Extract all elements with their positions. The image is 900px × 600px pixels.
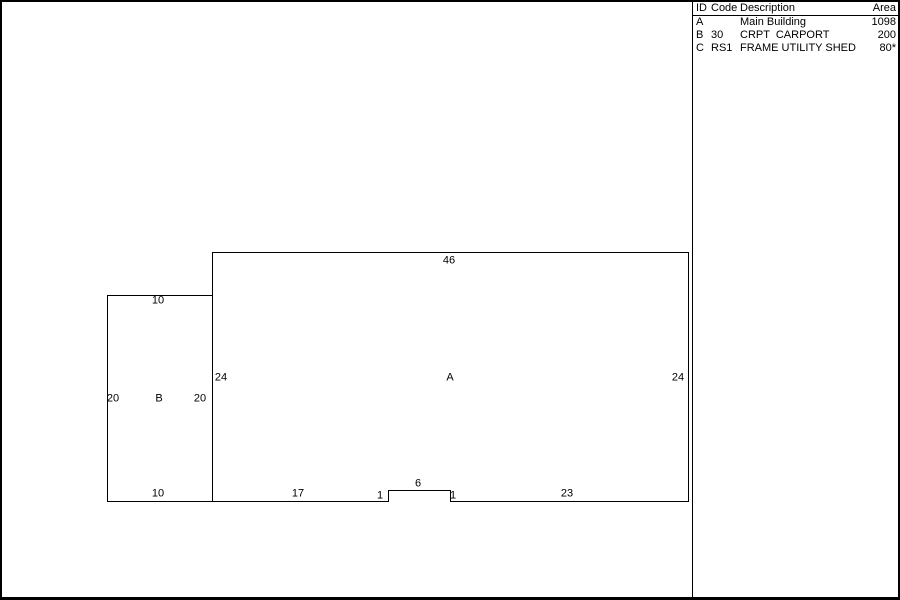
- legend-row-id: A: [696, 16, 703, 29]
- legend-divider: [692, 0, 693, 600]
- legend-header-code: Code: [711, 2, 737, 15]
- legend-row-area: 80*: [879, 42, 896, 55]
- dim-a-bottom-right: 23: [561, 489, 573, 500]
- legend-row-code: 30: [711, 29, 723, 42]
- dim-a-right-height: 24: [672, 373, 684, 384]
- legend-row-description: Main Building: [740, 16, 806, 29]
- dim-b-top-width: 10: [152, 296, 164, 307]
- legend-row-area: 1098: [872, 16, 896, 29]
- legend-row-id: B: [696, 29, 703, 42]
- dim-a-notch-left: 1: [377, 491, 383, 502]
- building-a-label: A: [446, 373, 453, 384]
- legend-row-description: FRAME UTILITY SHED: [740, 42, 856, 55]
- dim-a-top-width: 46: [443, 256, 455, 267]
- dim-a-notch-right: 1: [450, 491, 456, 502]
- legend-header-id: ID: [696, 2, 707, 15]
- legend-row-area: 200: [878, 29, 896, 42]
- dim-b-left-height: 20: [107, 394, 119, 405]
- legend-header-area: Area: [873, 2, 896, 15]
- carport-b-label: B: [155, 394, 162, 405]
- legend-row-id: C: [696, 42, 704, 55]
- dim-b-bottom-width: 10: [152, 489, 164, 500]
- dim-a-bottom-left: 17: [292, 489, 304, 500]
- dim-a-left-height: 24: [215, 373, 227, 384]
- building-outlines: [0, 0, 900, 600]
- legend-header-description: Description: [740, 2, 795, 15]
- dim-b-right-height: 20: [194, 394, 206, 405]
- sketch-page: 46 24 A 24 17 1 6 1 23 10 20 B 20 10 ID …: [0, 0, 900, 600]
- legend-row-code: RS1: [711, 42, 732, 55]
- dim-a-notch-width: 6: [415, 479, 421, 490]
- legend-row-description: CRPT CARPORT: [740, 29, 829, 42]
